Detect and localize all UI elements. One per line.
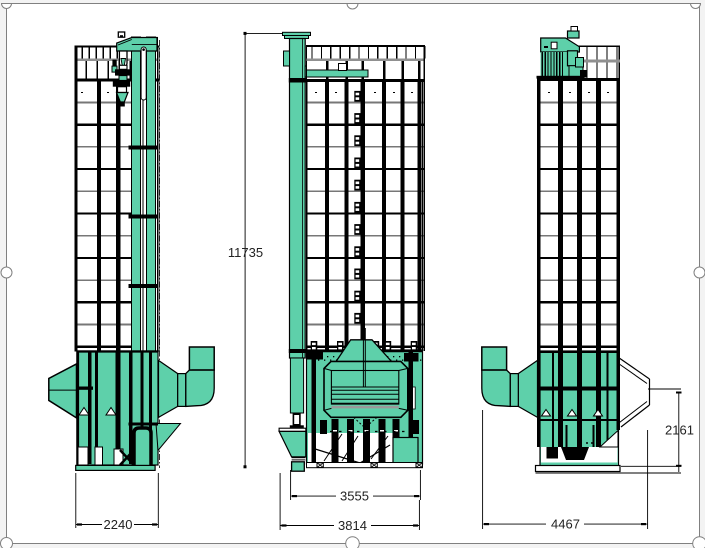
svg-text:3555: 3555 (340, 489, 369, 504)
svg-text:4467: 4467 (551, 517, 580, 532)
svg-text:2161: 2161 (665, 423, 694, 438)
svg-text:11735: 11735 (228, 245, 263, 260)
svg-text:2240: 2240 (104, 517, 133, 532)
svg-text:3814: 3814 (338, 518, 367, 533)
